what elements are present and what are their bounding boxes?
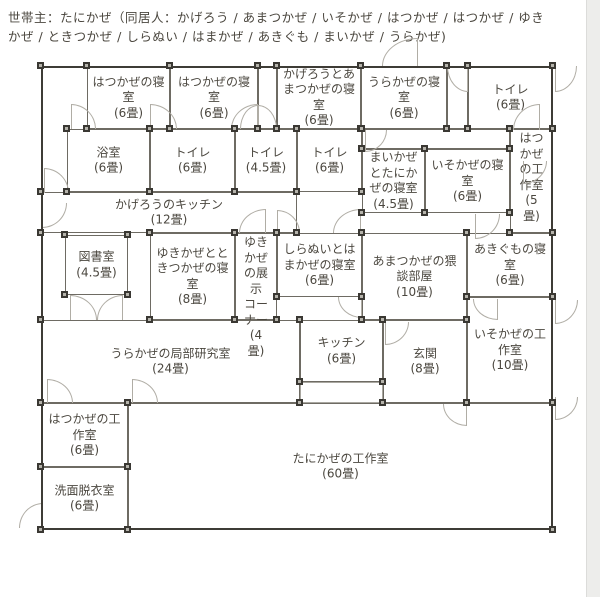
room-label: いそかぜの工 作室 (10畳)	[466, 327, 554, 374]
wall-handle[interactable]	[379, 378, 386, 385]
wall-handle[interactable]	[273, 62, 280, 69]
wall-handle[interactable]	[231, 316, 238, 323]
wall-handle[interactable]	[293, 229, 300, 236]
wall-handle[interactable]	[273, 293, 280, 300]
room-shiranui-hamakaze-bedroom[interactable]: しらぬいとは まかぜの寝室 (6畳)	[277, 233, 362, 297]
room-hatsukaze-workshop-6[interactable]: はつかぜの工 作室 (6畳)	[41, 403, 128, 467]
wall-handle[interactable]	[506, 125, 513, 132]
wall-handle[interactable]	[124, 399, 131, 406]
room-kitchen-2-lower[interactable]	[300, 382, 383, 403]
wall-handle[interactable]	[37, 463, 44, 470]
wall-handle[interactable]	[421, 145, 428, 152]
wall-handle[interactable]	[443, 62, 450, 69]
door-arc[interactable]	[19, 503, 43, 528]
room-label: あきぐもの寝 室 (6畳)	[466, 242, 554, 289]
wall-handle[interactable]	[146, 229, 153, 236]
wall-handle[interactable]	[421, 209, 428, 216]
room-akigumo-bedroom[interactable]: あきぐもの寝 室 (6畳)	[467, 233, 553, 297]
room-label: ゆきかぜとと きつかぜの寝 室 (8畳)	[149, 246, 236, 308]
room-label: いそかぜの寝 室 (6畳)	[424, 158, 511, 205]
wall-handle[interactable]	[37, 188, 44, 195]
wall-handle[interactable]	[379, 316, 386, 323]
floorplan-canvas: 世帯主：たにかぜ（同居人：かげろう / あまつかぜ / いそかぜ / はつかぜ …	[0, 0, 600, 597]
wall-handle[interactable]	[549, 526, 556, 533]
wall-handle[interactable]	[146, 316, 153, 323]
wall-handle[interactable]	[464, 62, 471, 69]
room-label: 図書室 (4.5畳)	[64, 250, 129, 281]
wall-handle[interactable]	[463, 293, 470, 300]
room-toilet-1[interactable]: トイレ (6畳)	[468, 66, 553, 129]
room-label: たにかぜの工作室 (60畳)	[127, 451, 554, 482]
room-label: 洗面脱衣室 (6畳)	[40, 483, 129, 514]
room-bathroom[interactable]: 浴室 (6畳)	[67, 129, 150, 192]
room-label: トイレ (6畳)	[467, 82, 554, 113]
wall-handle[interactable]	[358, 209, 365, 216]
wall-handle[interactable]	[549, 293, 556, 300]
wall-handle[interactable]	[37, 229, 44, 236]
wall-handle[interactable]	[296, 316, 303, 323]
wall-handle[interactable]	[273, 125, 280, 132]
room-tanikaze-workshop[interactable]: たにかぜの工作室 (60畳)	[128, 403, 553, 530]
wall-handle[interactable]	[37, 526, 44, 533]
wall-handle[interactable]	[549, 229, 556, 236]
wall-handle[interactable]	[63, 188, 70, 195]
wall-handle[interactable]	[146, 188, 153, 195]
wall-handle[interactable]	[146, 125, 153, 132]
room-label: はつかぜの工 作室 (6畳)	[40, 412, 129, 459]
wall-handle[interactable]	[63, 125, 70, 132]
wall-handle[interactable]	[61, 231, 68, 238]
wall-handle[interactable]	[506, 209, 513, 216]
wall-handle[interactable]	[358, 229, 365, 236]
room-urakaze-lab[interactable]: うらかぜの局部研究室 (24畳)	[41, 320, 300, 403]
door-arc[interactable]	[555, 300, 578, 324]
wall-handle[interactable]	[124, 463, 131, 470]
room-label: うらかぜの寝 室 (6畳)	[360, 74, 448, 121]
wall-handle[interactable]	[293, 188, 300, 195]
room-label: トイレ (4.5畳)	[234, 145, 298, 176]
wall-handle[interactable]	[296, 399, 303, 406]
wall-handle[interactable]	[357, 62, 364, 69]
room-toilet-4[interactable]: トイレ (6畳)	[297, 129, 362, 192]
wall-handle[interactable]	[506, 229, 513, 236]
room-urakaze-bedroom[interactable]: うらかぜの寝 室 (6畳)	[361, 66, 447, 129]
room-label: かげろうとあ まつかぜの寝 室 (6畳)	[276, 67, 362, 129]
wall-handle[interactable]	[549, 62, 556, 69]
door-arc[interactable]	[70, 295, 97, 320]
room-label: しらぬいとは まかぜの寝室 (6畳)	[276, 242, 363, 289]
wall-handle[interactable]	[254, 125, 261, 132]
wall-handle[interactable]	[166, 125, 173, 132]
wall-handle[interactable]	[37, 62, 44, 69]
room-library[interactable]: 図書室 (4.5畳)	[65, 235, 128, 295]
wall-handle[interactable]	[83, 62, 90, 69]
wall-handle[interactable]	[37, 316, 44, 323]
wall-handle[interactable]	[83, 125, 90, 132]
wall-handle[interactable]	[463, 399, 470, 406]
room-label: トイレ (6畳)	[296, 145, 363, 176]
room-label: うらかぜの局部研究室 (24畳)	[40, 346, 301, 377]
wall-handle[interactable]	[124, 526, 131, 533]
room-amatsukaze-waidan-room[interactable]: あまつかぜの猥 談部屋 (10畳)	[362, 233, 467, 320]
wall-handle[interactable]	[124, 231, 131, 238]
room-label: キッチン (6畳)	[299, 336, 384, 367]
page-gutter	[586, 0, 600, 597]
wall-handle[interactable]	[358, 125, 365, 132]
wall-handle[interactable]	[463, 229, 470, 236]
household-header: 世帯主：たにかぜ（同居人：かげろう / あまつかぜ / いそかぜ / はつかぜ …	[8, 8, 586, 46]
wall-handle[interactable]	[358, 293, 365, 300]
wall-handle[interactable]	[124, 291, 131, 298]
wall-handle[interactable]	[549, 125, 556, 132]
door-arc[interactable]	[97, 295, 123, 320]
wall-handle[interactable]	[464, 125, 471, 132]
room-label: 玄関 (8畳)	[382, 346, 468, 377]
room-toilet-3[interactable]: トイレ (4.5畳)	[235, 129, 297, 192]
room-washroom[interactable]: 洗面脱衣室 (6畳)	[41, 467, 128, 530]
wall-handle[interactable]	[293, 125, 300, 132]
wall-handle[interactable]	[506, 145, 513, 152]
wall-handle[interactable]	[166, 62, 173, 69]
room-kagero-amatsukaze-bedroom[interactable]: かげろうとあ まつかぜの寝 室 (6畳)	[277, 66, 361, 129]
door-arc[interactable]	[555, 66, 577, 92]
room-label: トイレ (6畳)	[149, 145, 236, 176]
wall-handle[interactable]	[37, 399, 44, 406]
wall-handle[interactable]	[358, 145, 365, 152]
room-isokaze-bedroom[interactable]: いそかぜの寝 室 (6畳)	[425, 149, 510, 213]
room-maikaze-tanikaze-bedroom[interactable]: まいかぜ とたにか ぜの寝室 (4.5畳)	[362, 149, 425, 213]
wall-handle[interactable]	[231, 229, 238, 236]
room-label: 浴室 (6畳)	[66, 145, 151, 176]
door-arc[interactable]	[555, 397, 578, 420]
wall-handle[interactable]	[358, 316, 365, 323]
wall-handle[interactable]	[61, 291, 68, 298]
wall-handle[interactable]	[443, 125, 450, 132]
room-yukikaze-tokitsukaze-bedroom[interactable]: ゆきかぜとと きつかぜの寝 室 (8畳)	[150, 233, 235, 320]
room-label: あまつかぜの猥 談部屋 (10畳)	[361, 253, 468, 300]
room-toilet-2[interactable]: トイレ (6畳)	[150, 129, 235, 192]
wall-handle[interactable]	[273, 316, 280, 323]
room-yukikaze-display-corner[interactable]: ゆき かぜ の展 示 コー ナー (4 畳)	[235, 233, 277, 320]
wall-handle[interactable]	[463, 316, 470, 323]
wall-handle[interactable]	[273, 229, 280, 236]
room-label: まいかぜ とたにか ぜの寝室 (4.5畳)	[361, 150, 426, 212]
door-arc[interactable]	[333, 209, 361, 233]
wall-handle[interactable]	[379, 399, 386, 406]
wall-handle[interactable]	[254, 62, 261, 69]
wall-handle[interactable]	[358, 188, 365, 195]
wall-handle[interactable]	[296, 378, 303, 385]
room-kitchen-2[interactable]: キッチン (6畳)	[300, 320, 383, 382]
door-arc[interactable]	[338, 297, 362, 318]
wall-handle[interactable]	[549, 399, 556, 406]
wall-handle[interactable]	[231, 188, 238, 195]
wall-handle[interactable]	[231, 125, 238, 132]
